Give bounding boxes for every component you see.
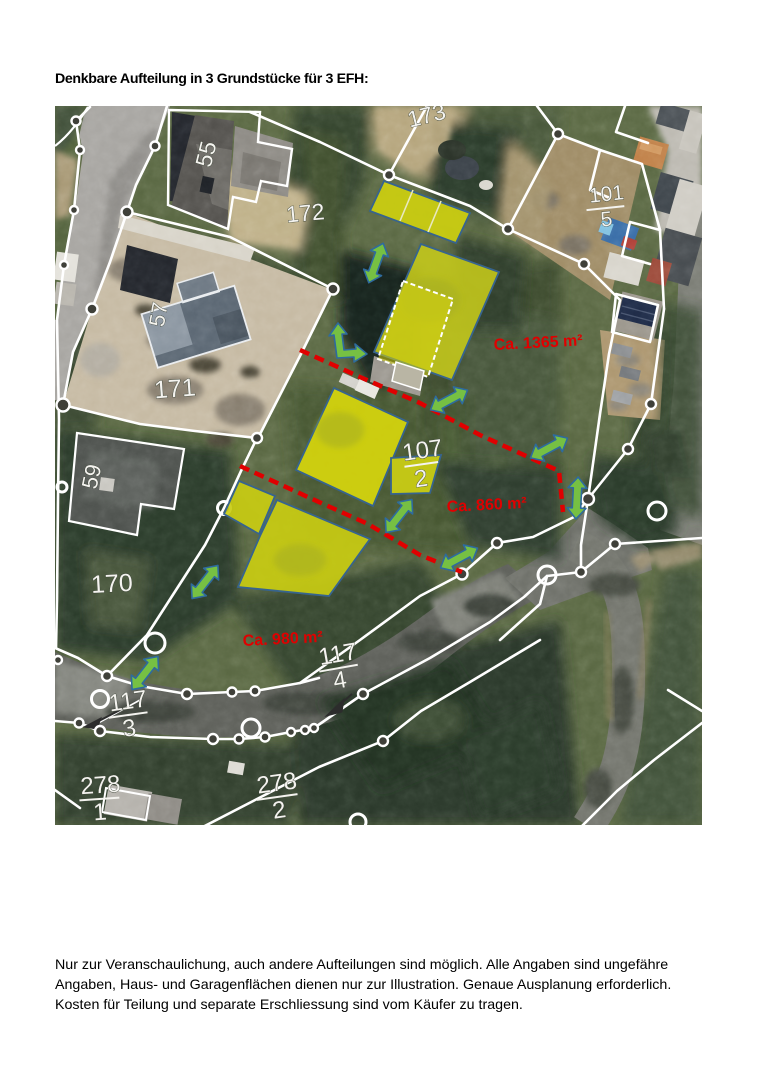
svg-text:1: 1 (92, 799, 107, 825)
svg-text:171: 171 (153, 374, 197, 405)
svg-text:5: 5 (599, 207, 613, 231)
svg-text:278: 278 (80, 771, 122, 801)
svg-text:57: 57 (144, 300, 173, 328)
svg-text:59: 59 (77, 462, 107, 491)
svg-text:170: 170 (90, 569, 133, 599)
svg-text:101: 101 (588, 181, 625, 208)
svg-text:172: 172 (285, 198, 325, 227)
